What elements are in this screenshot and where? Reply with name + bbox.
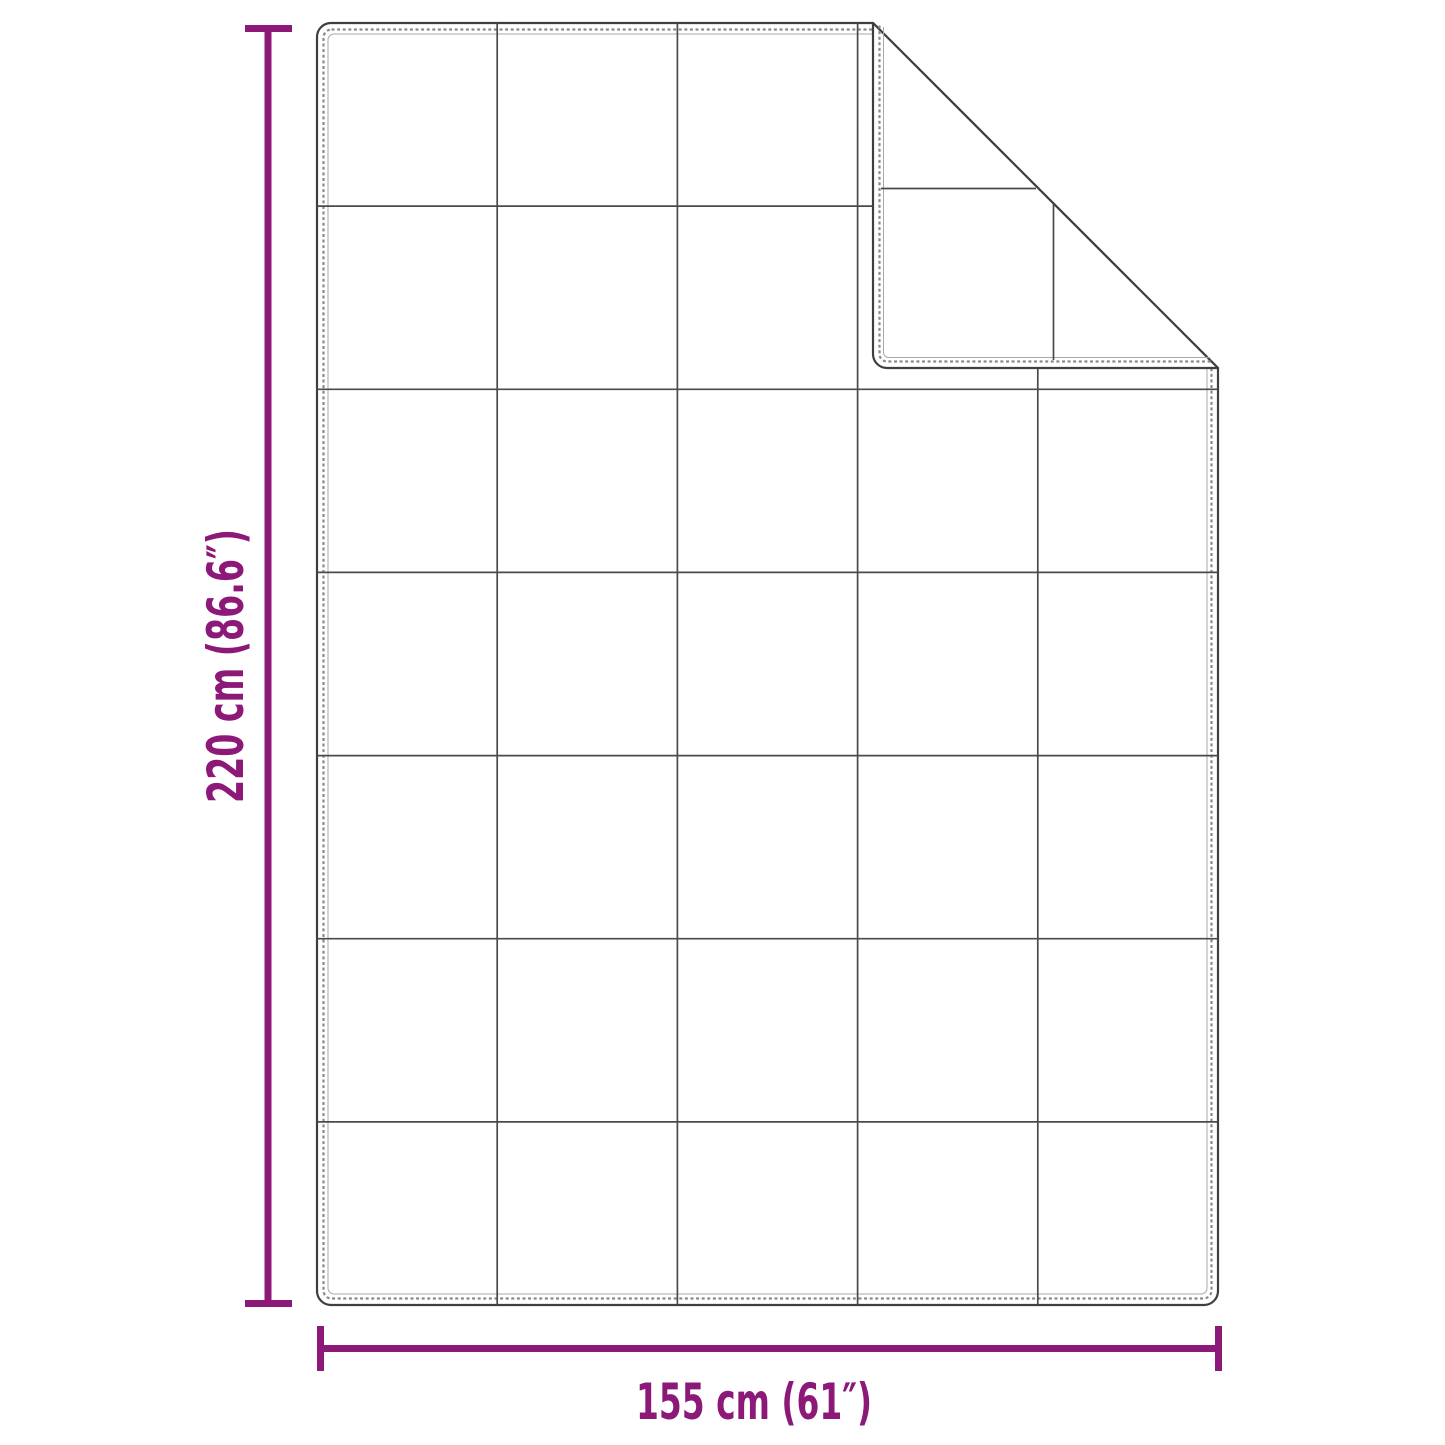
blanket-outline <box>317 23 1218 1305</box>
blanket-dimension-diagram: 220 cm (86.6″) 155 cm (61″) <box>0 0 1445 1445</box>
dimension-diagram-page: 220 cm (86.6″) 155 cm (61″) <box>0 0 1445 1445</box>
width-dimension-label: 155 cm (61″) <box>636 1373 872 1431</box>
folded-corner-flap <box>873 23 1218 368</box>
height-dimension-label: 220 cm (86.6″) <box>197 529 255 803</box>
